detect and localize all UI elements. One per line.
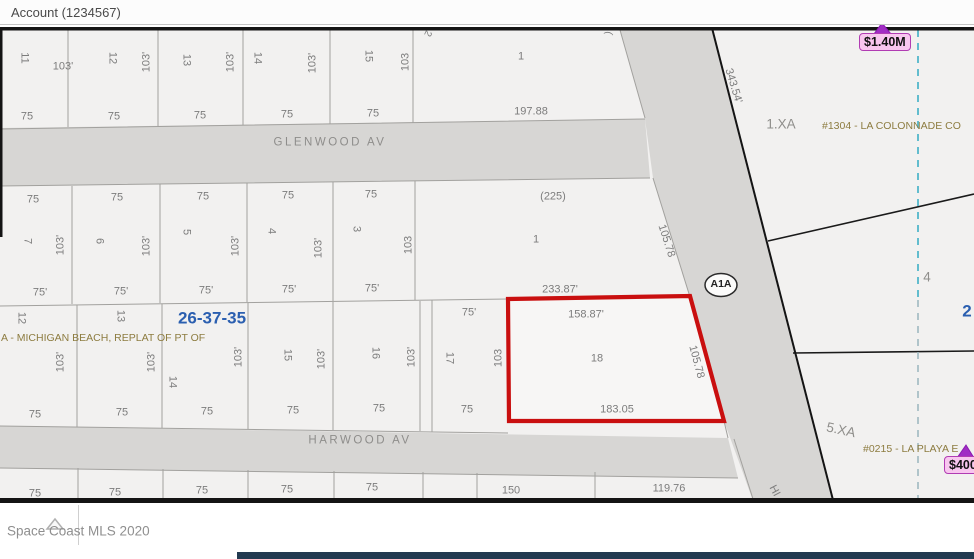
plat-map[interactable] [0, 0, 974, 559]
bottom-navy-bar [237, 552, 974, 559]
highlighted-parcel-outline[interactable] [508, 296, 724, 421]
road-shield-a1a: A1A [705, 278, 737, 290]
account-label: Account (1234567) [11, 5, 121, 20]
watermark: Space Coast MLS 2020 [7, 524, 150, 538]
price-marker-badge[interactable]: $1.40M [859, 33, 911, 51]
header-bar: Account (1234567) [0, 0, 974, 25]
price-marker-badge[interactable]: $400 [944, 456, 974, 474]
plat-map-viewer: Account (1234567) [0, 0, 974, 559]
